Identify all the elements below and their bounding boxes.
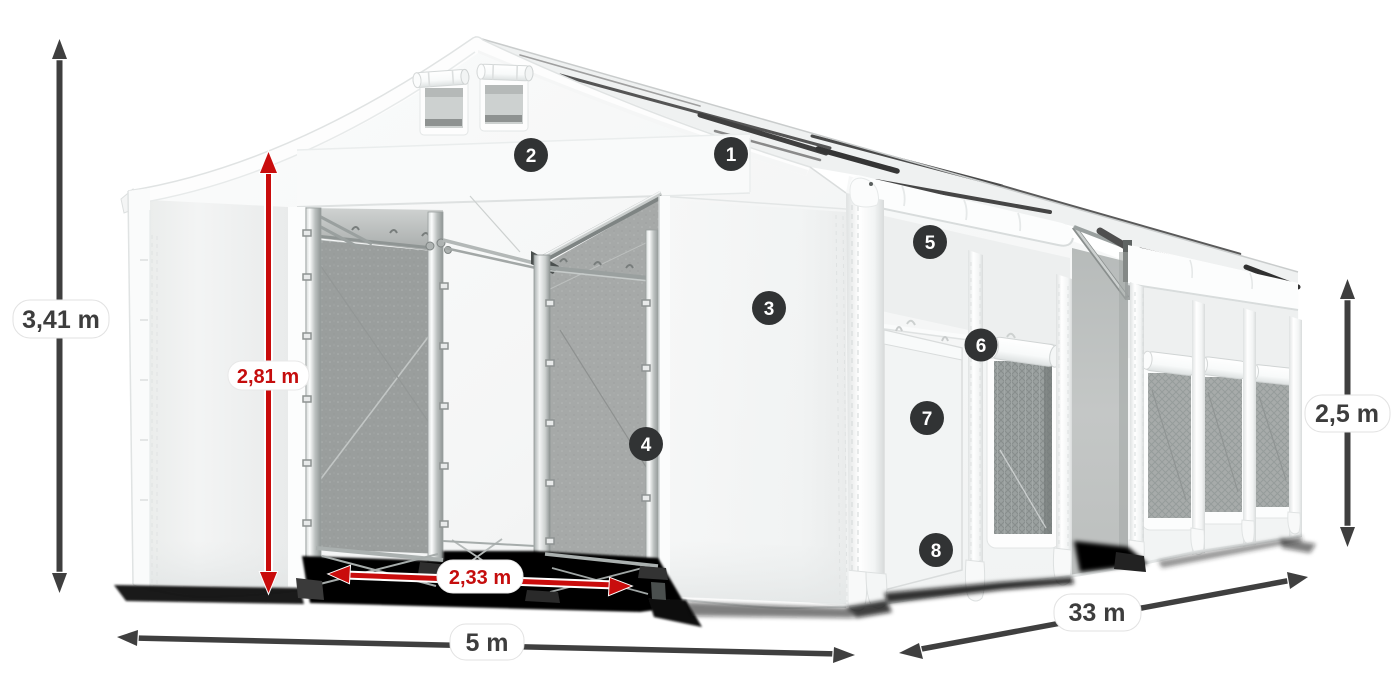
svg-text:1: 1 (726, 145, 737, 166)
svg-text:2: 2 (526, 146, 537, 167)
svg-text:4: 4 (641, 435, 652, 456)
svg-text:5 m: 5 m (465, 629, 508, 657)
svg-text:8: 8 (931, 541, 942, 562)
svg-text:5: 5 (925, 233, 936, 254)
svg-text:3,41 m: 3,41 m (22, 306, 100, 334)
svg-text:33 m: 33 m (1069, 599, 1126, 627)
svg-text:7: 7 (922, 409, 933, 430)
svg-text:2,81 m: 2,81 m (237, 366, 299, 388)
svg-text:3: 3 (764, 299, 775, 320)
svg-text:6: 6 (976, 336, 987, 357)
svg-text:2,33 m: 2,33 m (449, 567, 511, 589)
svg-text:2,5 m: 2,5 m (1315, 400, 1379, 428)
